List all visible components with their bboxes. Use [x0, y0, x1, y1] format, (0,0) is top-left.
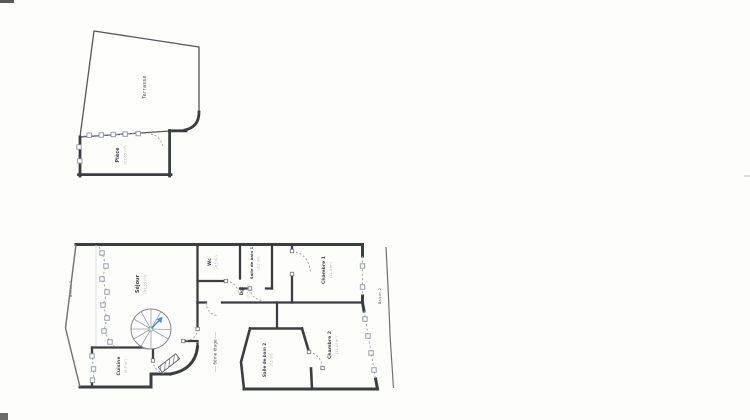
room-area-piece: (17,65 m²) — [124, 145, 128, 165]
room-label-terrasse: Terrasse — [142, 75, 148, 100]
balcon2-boundary — [386, 247, 394, 388]
floor-plan-page: Terrasse Pièce (17,65 m²) — [0, 0, 750, 420]
room-label-chambre2: Chambre 2 — [327, 331, 333, 359]
window-chains — [90, 245, 376, 382]
terrasse-outline — [80, 31, 199, 137]
room-label-sdb1: Salle de bain 1 — [249, 246, 254, 279]
entrance-door-hatch — [158, 354, 179, 373]
room-label-sejour: Séjour — [134, 274, 141, 293]
room-area-sdb1: (3,2 m²) — [257, 257, 261, 270]
door-swing-arcs — [153, 251, 323, 374]
window-symbols — [363, 317, 376, 372]
window-symbols — [360, 264, 364, 289]
sdb2-chambre2-walls — [241, 329, 312, 390]
room-label-piece: Pièce — [114, 147, 121, 163]
room-label-balcon1: Balcon 1 — [68, 280, 73, 297]
sdb2-door-arc — [309, 352, 323, 368]
room-area-sejour: (45,55 m²) — [144, 274, 148, 294]
room-area-sdb2: (7,5 m²) — [270, 354, 274, 367]
room-area-chambre2: (23,45 m²) — [335, 335, 339, 354]
hall-door-arc — [206, 303, 219, 316]
main-plan: Balcon 1 Séjour (45,55 m²) Cuisine (8,9 … — [66, 245, 394, 390]
room-area-chambre1: (11,4 m²) — [329, 261, 333, 278]
floor-plan-svg: Terrasse Pièce (17,65 m²) — [0, 0, 750, 420]
window-symbols — [90, 354, 96, 383]
room-area-wc: (4,5 m²) — [215, 255, 219, 268]
room-label-cuisine: Cuisine — [116, 357, 122, 376]
balcon1-boundary — [66, 245, 81, 388]
room-label-balcon2: Balcon 2 — [377, 287, 382, 304]
room-label-sdb2: Salle de bain 2 — [262, 343, 267, 377]
room-label-dgt: Dgt — [239, 287, 244, 295]
door-swing-arc — [151, 134, 163, 146]
room-label-wc: Wc — [207, 258, 213, 266]
door-hinges — [151, 249, 324, 369]
room-area-cuisine: (8,9 m²) — [124, 358, 128, 372]
room-area-dgt: (7,5 m²) — [247, 285, 251, 298]
spiral-staircase — [131, 309, 171, 349]
room-label-chambre1: Chambre 1 — [321, 256, 327, 284]
floor-note: ---- 6ème étage ---- — [213, 332, 218, 372]
upper-plan: Terrasse Pièce (17,65 m²) — [77, 31, 199, 176]
chambre1-door-arc — [292, 251, 311, 273]
